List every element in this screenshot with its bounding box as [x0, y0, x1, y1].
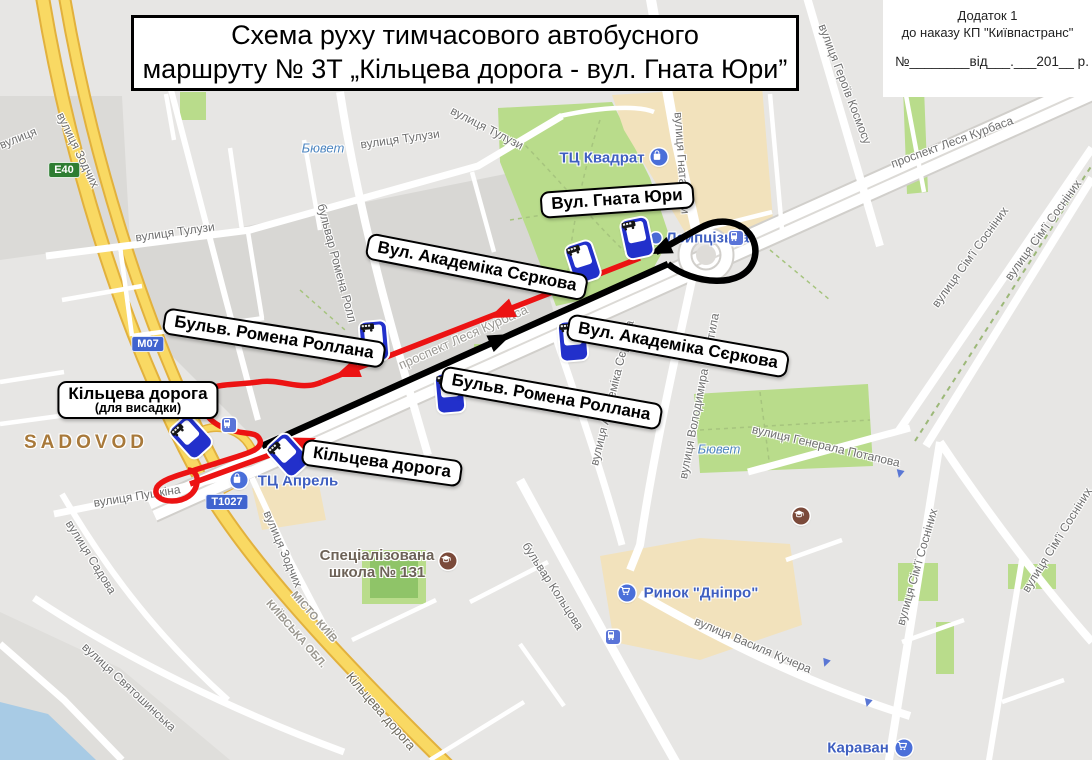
stop-callout-text: Бульв. Ромена Роллана	[450, 370, 652, 425]
stop-callout: Бульв. Ромена Роллана	[161, 307, 386, 369]
scheme-title-line2: маршруту № 3Т „Кільцева дорога - вул. Гн…	[143, 53, 788, 87]
bus-route-scheme-map: вулицявулиця Зодчихвулиця Тулузивулиця Т…	[0, 0, 1092, 760]
stop-callout: Бульв. Ромена Роллана	[439, 365, 664, 430]
stop-callout: Вул. Академіка Сєркова	[565, 313, 791, 379]
annex-note: Додаток 1 до наказу КП "Київпастранс" №_…	[883, 0, 1092, 97]
scheme-title-line1: Схема руху тимчасового автобусного	[231, 19, 699, 53]
stop-callout: Вул. Гната Юри	[539, 181, 694, 219]
stop-callout: Вул. Академіка Сєркова	[364, 232, 589, 301]
stop-callout-text: Вул. Академіка Сєркова	[376, 237, 579, 295]
stop-callout-text: Вул. Гната Юри	[551, 185, 684, 214]
scheme-title: Схема руху тимчасового автобусного маршр…	[131, 15, 799, 91]
annex-line1: Додаток 1	[883, 8, 1092, 23]
callouts-layer: Вул. Гната Юри Вул. Академіка Сєркова Бу…	[0, 0, 1092, 760]
stop-callout-text: Бульв. Ромена Роллана	[173, 312, 375, 363]
annex-number-line: №________від___.___201__ р.	[895, 54, 1092, 69]
stop-callout: Кільцева дорога	[300, 438, 463, 487]
stop-callout-text: Вул. Академіка Сєркова	[577, 318, 780, 373]
annex-line2: до наказу КП "Київпастранс"	[883, 25, 1092, 40]
stop-callout: Кільцева дорога (для висадки)	[57, 381, 218, 419]
stop-callout-text: Кільцева дорога	[312, 443, 453, 482]
